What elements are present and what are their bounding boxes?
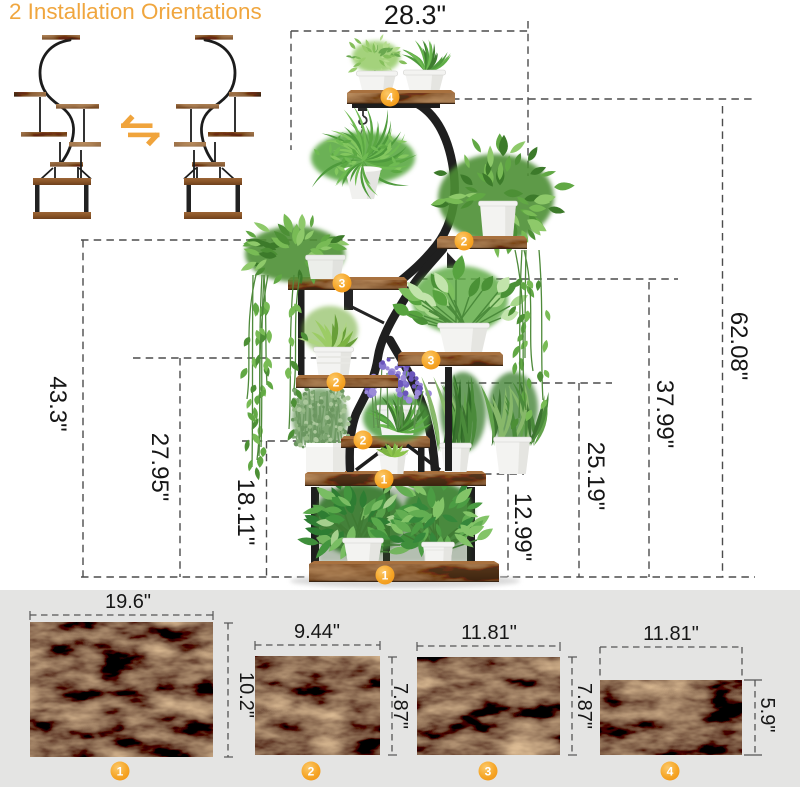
svg-text:3: 3 — [485, 764, 492, 778]
svg-text:10.2": 10.2" — [235, 672, 257, 718]
svg-text:19.6": 19.6" — [105, 591, 151, 613]
svg-text:4: 4 — [387, 90, 394, 104]
svg-text:7.87": 7.87" — [389, 683, 411, 729]
svg-text:1: 1 — [381, 472, 388, 486]
svg-text:1: 1 — [117, 764, 124, 778]
svg-text:2: 2 — [333, 375, 340, 389]
svg-text:4: 4 — [667, 764, 674, 778]
svg-text:11.81": 11.81" — [643, 623, 699, 645]
svg-text:3: 3 — [339, 276, 346, 290]
svg-text:1: 1 — [382, 568, 389, 582]
svg-text:2: 2 — [461, 234, 468, 248]
svg-text:3: 3 — [428, 353, 435, 367]
svg-text:28.3": 28.3" — [384, 0, 446, 30]
svg-text:2 Installation Orientations: 2 Installation Orientations — [9, 0, 262, 24]
svg-text:18.11": 18.11" — [232, 479, 259, 546]
svg-text:2: 2 — [308, 764, 315, 778]
svg-text:11.81": 11.81" — [461, 622, 517, 644]
svg-text:62.08": 62.08" — [725, 312, 752, 381]
svg-text:9.44": 9.44" — [294, 621, 340, 643]
svg-text:2: 2 — [360, 433, 367, 447]
svg-text:43.3": 43.3" — [44, 376, 71, 431]
svg-text:5.9": 5.9" — [756, 698, 778, 733]
svg-text:27.95": 27.95" — [146, 433, 173, 502]
svg-text:37.99": 37.99" — [651, 380, 678, 449]
svg-text:7.87": 7.87" — [573, 683, 595, 729]
svg-text:25.19": 25.19" — [582, 442, 609, 511]
svg-text:12.99": 12.99" — [509, 493, 536, 562]
